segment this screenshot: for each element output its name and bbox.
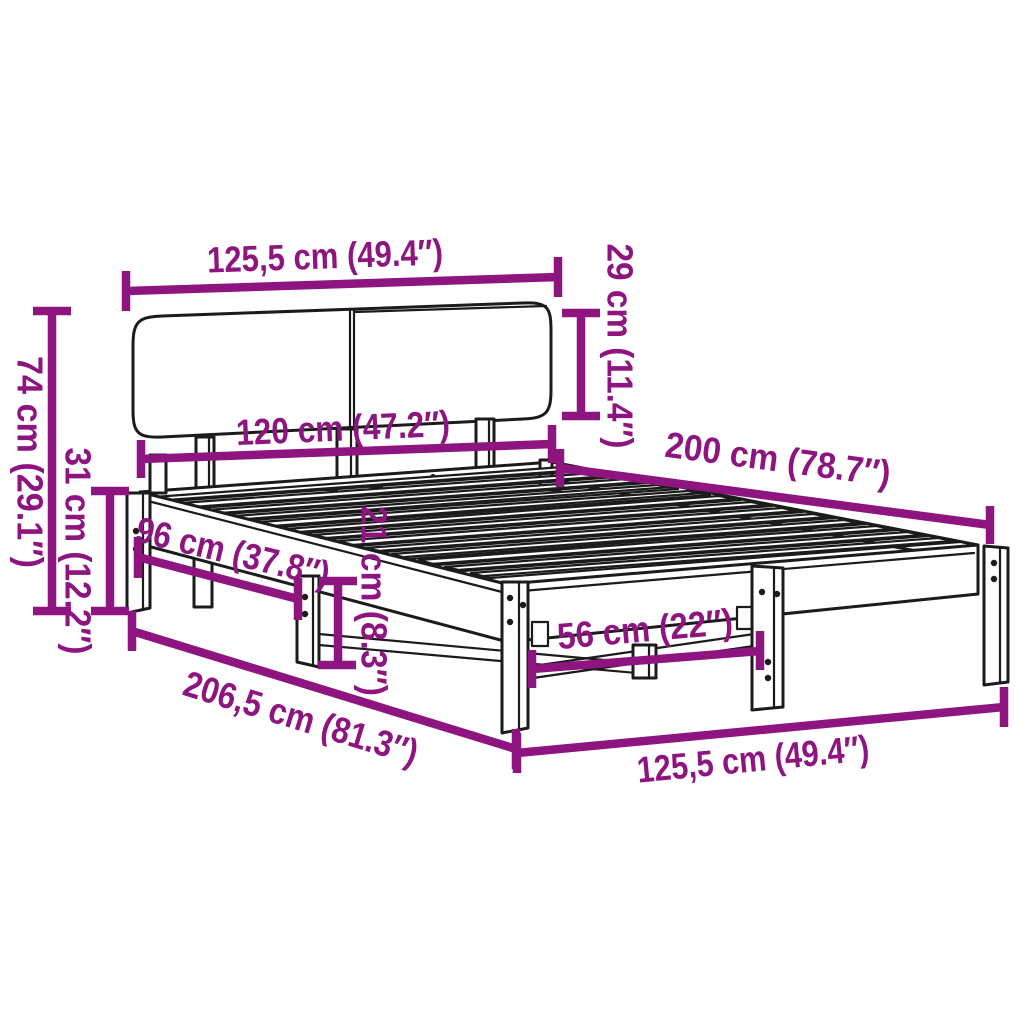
leg-foot-front <box>502 582 528 733</box>
dim-label-under-bed-clearance: 21 cm (8.3″) <box>354 506 395 696</box>
dim-label-headboard-width: 125,5 cm (49.4″) <box>206 231 443 280</box>
dim-label-frame-side-height: 31 cm (12.2″) <box>58 448 99 655</box>
dim-label-overall-height: 74 cm (29.1″) <box>10 356 51 568</box>
diagram-canvas: 125,5 cm (49.4″) 29 cm (11.4″) 120 cm (4… <box>0 0 1024 1024</box>
dim-label-headboard-height: 29 cm (11.4″) <box>600 244 641 449</box>
bed-frame-dimension-diagram: 125,5 cm (49.4″) 29 cm (11.4″) 120 cm (4… <box>0 0 1024 1024</box>
dim-headboard-height <box>562 313 600 416</box>
support-block <box>532 622 548 646</box>
leg-foot-back <box>984 546 1008 685</box>
